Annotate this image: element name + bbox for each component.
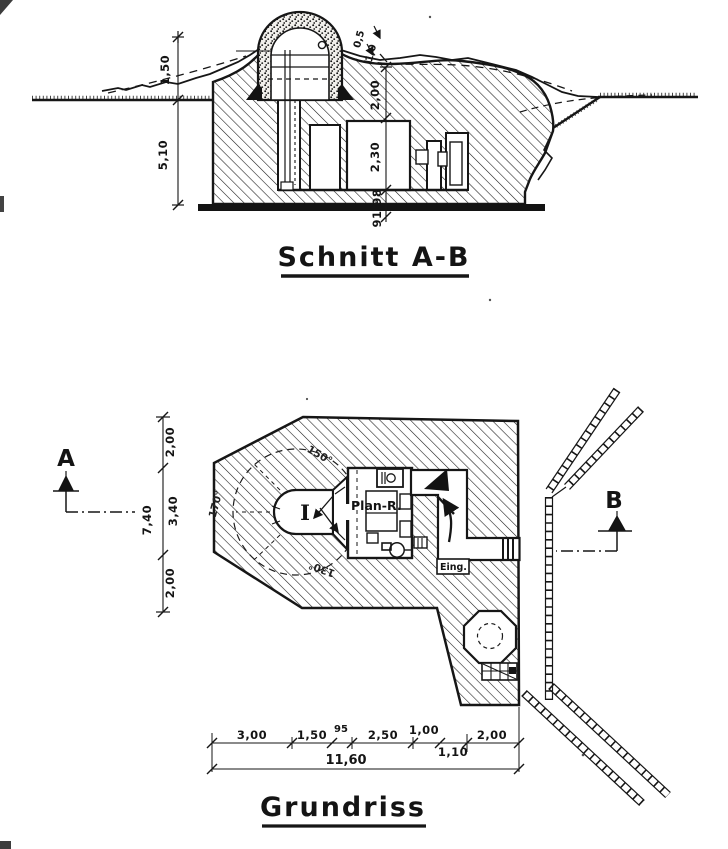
section-marker-b: B (556, 488, 632, 551)
wall-seat-1 (400, 494, 411, 509)
dim-cover-1: 0,5 (352, 29, 367, 49)
cupola-chamber (271, 28, 329, 100)
door-leaf (450, 142, 462, 185)
room-left (310, 125, 340, 190)
dim-bottom-2: 1,50 (297, 728, 327, 742)
cupola-aperture (318, 41, 325, 48)
terrain-ground-right (538, 95, 698, 180)
section-marker-a: A (53, 446, 135, 512)
doorway-2 (438, 152, 447, 166)
radio-niche (377, 469, 403, 487)
dim-wall-depth: 5,10 (156, 140, 170, 170)
marker-b-label: B (605, 488, 623, 514)
terrain-ground-left (32, 98, 213, 100)
dim-bottom-6: 1,10 (438, 745, 468, 759)
dim-mound-height: 1,50 (158, 55, 172, 85)
doorway-1 (416, 150, 428, 164)
dim-bottom-5: 1,00 (409, 723, 439, 737)
dim-left-bottom: 2,00 (163, 568, 177, 598)
dim-left-top: 2,00 (163, 427, 177, 457)
dim-left-total: 7,40 (140, 505, 154, 535)
plan-bottom-dimensions: 3,00 1,50 95 2,50 1,00 1,10 2,00 11,60 (207, 707, 524, 774)
stool (367, 533, 378, 543)
drawing-canvas: 1,50 5,10 0,5 1,0 2,00 2,30 91,98 Schnit… (0, 0, 728, 849)
wall-seat-2 (400, 521, 411, 537)
plan-drawing: 150° 170° 130° I (53, 388, 670, 826)
periscope-shaft (278, 96, 300, 190)
tobruk-octagon (464, 611, 516, 663)
section-title: Schnitt A-B (277, 242, 470, 273)
dim-bottom-total: 11,60 (325, 753, 366, 768)
dim-room-height: 2,30 (368, 142, 382, 172)
turret-label: I (300, 500, 310, 525)
plan-room-label: Plan-R. (351, 498, 402, 513)
plan-room: Plan-R. (344, 468, 412, 558)
plan-title: Grundriss (260, 792, 426, 823)
dim-roof-thickness: 2,00 (368, 80, 382, 110)
corridor-niche (414, 537, 427, 548)
dim-bottom-7: 2,00 (477, 728, 507, 742)
dim-left-middle: 3,40 (166, 496, 180, 526)
trench (522, 388, 671, 806)
dim-bottom-3: 95 (334, 724, 348, 735)
entrance-label: Eing. (440, 562, 467, 573)
dim-bottom-1: 3,00 (237, 728, 267, 742)
section-drawing: 1,50 5,10 0,5 1,0 2,00 2,30 91,98 Schnit… (32, 12, 698, 276)
marker-a-label: A (57, 446, 75, 472)
plan-title-group: Grundriss (260, 792, 426, 826)
plan-left-dimensions: 2,00 3,40 7,40 2,00 (140, 412, 180, 617)
scanned-bunker-drawing: 1,50 5,10 0,5 1,0 2,00 2,30 91,98 Schnit… (0, 0, 728, 849)
dim-floor-level: 91,98 (370, 189, 384, 228)
stove (390, 543, 404, 557)
section-title-group: Schnitt A-B (277, 242, 470, 276)
dim-bottom-4: 2,50 (368, 728, 398, 742)
